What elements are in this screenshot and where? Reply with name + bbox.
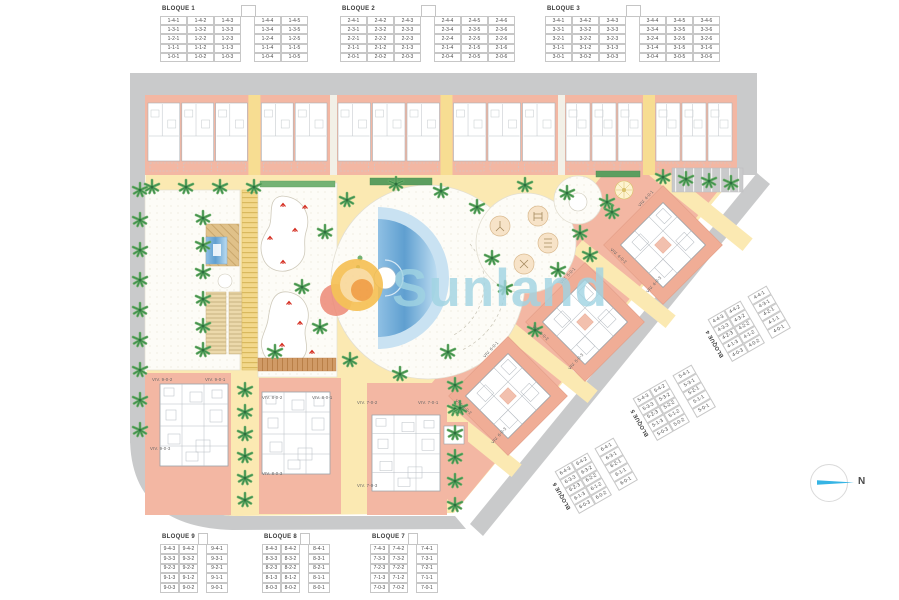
hedge-2 — [596, 171, 640, 177]
unit-cell: 1-4-4 — [254, 16, 281, 25]
unit-cell: 7-0-1 — [416, 583, 438, 593]
unit-row: 7-3-37-3-27-3-1 — [370, 554, 438, 564]
unit-row: 8-1-38-1-28-1-1 — [262, 573, 330, 583]
gap-cell — [300, 583, 308, 593]
unit-cell: 7-1-2 — [389, 573, 408, 583]
unit-cell: 8-0-3 — [262, 583, 281, 593]
gap-cell — [408, 564, 416, 574]
unit-cell: 3-3-2 — [572, 25, 599, 34]
unit-cell: 3-0-1 — [545, 53, 572, 62]
unit-cell: 8-4-3 — [262, 544, 281, 554]
unit-cell: 2-0-3 — [394, 53, 421, 62]
top-right-road-corner — [737, 95, 757, 175]
bloque-9-grid: 9-4-39-4-29-4-19-3-39-3-29-3-19-2-39-2-2… — [160, 544, 228, 593]
viv-label: VIV. 8-0-2 — [262, 395, 283, 400]
bloque-3-table: BLOQUE 3 3-4-13-4-23-4-33-4-43-4-53-4-63… — [545, 5, 720, 62]
unit-row: 1-4-11-4-21-4-31-4-41-4-5 — [160, 16, 308, 25]
header-box — [408, 533, 418, 545]
unit-cell: 3-0-4 — [639, 53, 666, 62]
unit-cell: 1-2-4 — [254, 34, 281, 43]
unit-cell: 8-1-3 — [262, 573, 281, 583]
unit-cell: 2-3-5 — [461, 25, 488, 34]
gap-cell — [241, 53, 254, 62]
unit-cell: 9-3-1 — [206, 554, 228, 564]
unit-cell: 9-4-3 — [160, 544, 179, 554]
unit-row: 1-2-11-2-21-2-31-2-41-2-5 — [160, 34, 308, 43]
viv-label: VIV. 8-0-3 — [262, 471, 283, 476]
unit-cell: 9-0-1 — [206, 583, 228, 593]
unit-cell: 2-0-4 — [434, 53, 461, 62]
unit-cell: 2-2-4 — [434, 34, 461, 43]
gap-cell — [198, 573, 206, 583]
unit-cell: 7-2-1 — [416, 564, 438, 574]
unit-row: 1-3-11-3-21-3-31-3-41-3-5 — [160, 25, 308, 34]
bottom-building-zones — [145, 373, 468, 515]
unit-cell: 1-1-4 — [254, 44, 281, 53]
unit-cell: 2-4-4 — [434, 16, 461, 25]
unit-cell: 3-4-5 — [666, 16, 693, 25]
unit-cell: 1-3-1 — [160, 25, 187, 34]
unit-cell: 8-3-3 — [262, 554, 281, 564]
block-9-building — [160, 384, 228, 466]
unit-cell: 7-2-2 — [389, 564, 408, 574]
unit-cell: 9-1-2 — [179, 573, 198, 583]
unit-cell: 2-4-3 — [394, 16, 421, 25]
unit-cell: 9-2-2 — [179, 564, 198, 574]
header-box — [421, 5, 436, 17]
bloque-2-grid: 2-4-12-4-22-4-32-4-42-4-52-4-62-3-12-3-2… — [340, 16, 515, 62]
unit-cell: 3-1-2 — [572, 44, 599, 53]
unit-row: 3-4-13-4-23-4-33-4-43-4-53-4-6 — [545, 16, 720, 25]
unit-cell: 7-4-3 — [370, 544, 389, 554]
bloque-9-title: BLOQUE 9 — [162, 534, 195, 540]
unit-cell: 3-2-5 — [666, 34, 693, 43]
unit-cell: 9-2-1 — [206, 564, 228, 574]
bloque-3-grid: 3-4-13-4-23-4-33-4-43-4-53-4-63-3-13-3-2… — [545, 16, 720, 62]
bloque-3-header: BLOQUE 3 — [545, 5, 720, 16]
site-plan-page: VIV. 4-0-1 VIV. 4-0-2 VIV. 4-0-3 VIV. 5-… — [0, 0, 899, 600]
unit-cell: 9-0-3 — [160, 583, 179, 593]
hedge-garden — [260, 181, 335, 187]
unit-cell: 1-4-1 — [160, 16, 187, 25]
unit-cell: 8-4-1 — [308, 544, 330, 554]
unit-row: 8-0-38-0-28-0-1 — [262, 583, 330, 593]
unit-cell: 7-0-2 — [389, 583, 408, 593]
top-road — [130, 73, 757, 95]
pool-steps — [374, 267, 396, 289]
gap-cell — [241, 16, 254, 25]
unit-cell: 3-3-5 — [666, 25, 693, 34]
unit-cell: 8-1-1 — [308, 573, 330, 583]
bloque-7-title: BLOQUE 7 — [372, 534, 405, 540]
unit-cell: 1-1-3 — [214, 44, 241, 53]
unit-cell: 7-3-1 — [416, 554, 438, 564]
unit-cell: 3-3-4 — [639, 25, 666, 34]
unit-cell: 1-3-4 — [254, 25, 281, 34]
amenity-circle — [218, 274, 232, 288]
unit-cell: 2-3-3 — [394, 25, 421, 34]
unit-cell: 3-2-2 — [572, 34, 599, 43]
viv-label: VIV. 9-0-2 — [152, 377, 173, 382]
unit-cell: 8-2-2 — [281, 564, 300, 574]
unit-cell: 2-1-4 — [434, 44, 461, 53]
gap-cell — [241, 44, 254, 53]
unit-cell: 2-1-6 — [488, 44, 515, 53]
bloque-1-header: BLOQUE 1 — [160, 5, 308, 16]
viv-label: VIV. 7-0-3 — [357, 483, 378, 488]
unit-cell: 7-4-2 — [389, 544, 408, 554]
unit-cell: 1-4-2 — [187, 16, 214, 25]
gap-cell — [408, 544, 416, 554]
unit-cell: 9-3-2 — [179, 554, 198, 564]
gap-cell — [626, 34, 639, 43]
unit-cell: 1-2-5 — [281, 34, 308, 43]
unit-cell: 7-3-3 — [370, 554, 389, 564]
unit-cell: 9-4-1 — [206, 544, 228, 554]
bloque-1-table: BLOQUE 1 1-4-11-4-21-4-31-4-41-4-51-3-11… — [160, 5, 308, 62]
gap-cell — [626, 25, 639, 34]
kidney-pond-garden — [258, 181, 337, 377]
unit-cell: 3-3-6 — [693, 25, 720, 34]
unit-cell: 3-0-3 — [599, 53, 626, 62]
unit-row: 7-4-37-4-27-4-1 — [370, 544, 438, 554]
unit-cell: 3-0-5 — [666, 53, 693, 62]
unit-row: 7-0-37-0-27-0-1 — [370, 583, 438, 593]
bloque-2-title: BLOQUE 2 — [342, 6, 375, 12]
unit-cell: 2-0-5 — [461, 53, 488, 62]
gap-cell — [241, 25, 254, 34]
unit-cell: 1-0-4 — [254, 53, 281, 62]
unit-cell: 3-2-6 — [693, 34, 720, 43]
bloque-1-grid: 1-4-11-4-21-4-31-4-41-4-51-3-11-3-21-3-3… — [160, 16, 308, 62]
unit-row: 8-2-38-2-28-2-1 — [262, 564, 330, 574]
gap-cell — [421, 16, 434, 25]
unit-cell: 3-0-2 — [572, 53, 599, 62]
gap-cell — [626, 16, 639, 25]
gap-cell — [300, 573, 308, 583]
unit-row: 3-0-13-0-23-0-33-0-43-0-53-0-6 — [545, 53, 720, 62]
unit-cell: 3-3-3 — [599, 25, 626, 34]
unit-cell: 1-0-3 — [214, 53, 241, 62]
unit-row: 8-4-38-4-28-4-1 — [262, 544, 330, 554]
gap-cell — [421, 44, 434, 53]
unit-cell: 9-0-2 — [179, 583, 198, 593]
header-box — [198, 533, 208, 545]
unit-cell: 8-2-3 — [262, 564, 281, 574]
unit-cell: 7-2-3 — [370, 564, 389, 574]
block-8-building — [262, 392, 330, 474]
bloque-8-header: BLOQUE 8 — [262, 533, 330, 544]
unit-cell: 1-3-3 — [214, 25, 241, 34]
unit-cell: 2-1-1 — [340, 44, 367, 53]
unit-cell: 7-3-2 — [389, 554, 408, 564]
amenity-area — [145, 190, 242, 370]
unit-cell: 1-3-5 — [281, 25, 308, 34]
header-box — [300, 533, 310, 545]
unit-row: 1-1-11-1-21-1-31-1-41-1-5 — [160, 44, 308, 53]
unit-cell: 1-0-2 — [187, 53, 214, 62]
unit-cell: 2-3-6 — [488, 25, 515, 34]
unit-cell: 8-0-1 — [308, 583, 330, 593]
block-7-building — [372, 415, 440, 491]
unit-cell: 3-1-3 — [599, 44, 626, 53]
flower-feature — [615, 181, 633, 199]
bloque-7-grid: 7-4-37-4-27-4-17-3-37-3-27-3-17-2-37-2-2… — [370, 544, 438, 593]
unit-cell: 9-4-2 — [179, 544, 198, 554]
unit-cell: 2-1-2 — [367, 44, 394, 53]
unit-cell: 8-1-2 — [281, 573, 300, 583]
left-road — [130, 73, 145, 443]
unit-cell: 1-2-1 — [160, 34, 187, 43]
viv-label: VIV. 9-0-1 — [205, 377, 226, 382]
viv-label: VIV. 8-0-1 — [312, 395, 333, 400]
unit-cell: 3-1-6 — [693, 44, 720, 53]
pergola-walkway — [242, 190, 258, 370]
unit-cell: 2-4-1 — [340, 16, 367, 25]
unit-cell: 3-4-1 — [545, 16, 572, 25]
gap-cell — [198, 544, 206, 554]
viv-label: VIV. 7-0-2 — [357, 400, 378, 405]
gap-cell — [421, 34, 434, 43]
unit-cell: 2-1-3 — [394, 44, 421, 53]
unit-cell: 1-1-5 — [281, 44, 308, 53]
bloque-9-table: BLOQUE 9 9-4-39-4-29-4-19-3-39-3-29-3-19… — [160, 533, 228, 593]
unit-cell: 7-4-1 — [416, 544, 438, 554]
north-label: N — [858, 476, 865, 487]
unit-cell: 2-0-1 — [340, 53, 367, 62]
unit-cell: 3-3-1 — [545, 25, 572, 34]
unit-cell: 3-0-6 — [693, 53, 720, 62]
unit-row: 2-4-12-4-22-4-32-4-42-4-52-4-6 — [340, 16, 515, 25]
band-gap-1 — [330, 95, 337, 175]
gap-cell — [300, 544, 308, 554]
unit-row: 2-2-12-2-22-2-32-2-42-2-52-2-6 — [340, 34, 515, 43]
unit-cell: 2-1-5 — [461, 44, 488, 53]
unit-row: 8-3-38-3-28-3-1 — [262, 554, 330, 564]
unit-cell: 8-3-2 — [281, 554, 300, 564]
bloque-8-grid: 8-4-38-4-28-4-18-3-38-3-28-3-18-2-38-2-2… — [262, 544, 330, 593]
unit-cell: 9-1-3 — [160, 573, 179, 583]
bloque-9-header: BLOQUE 9 — [160, 533, 228, 544]
gap-cell — [626, 53, 639, 62]
gap-cell — [300, 554, 308, 564]
bloque-7-table: BLOQUE 7 7-4-37-4-27-4-17-3-37-3-27-3-17… — [370, 533, 438, 593]
unit-row: 3-1-13-1-23-1-33-1-43-1-53-1-6 — [545, 44, 720, 53]
sunbed-row-2 — [229, 292, 242, 354]
unit-cell: 8-2-1 — [308, 564, 330, 574]
unit-cell: 3-4-4 — [639, 16, 666, 25]
gap-cell — [300, 564, 308, 574]
unit-cell: 3-4-3 — [599, 16, 626, 25]
unit-cell: 9-2-3 — [160, 564, 179, 574]
bloque-2-table: BLOQUE 2 2-4-12-4-22-4-32-4-42-4-52-4-62… — [340, 5, 515, 62]
unit-row: 2-1-12-1-22-1-32-1-42-1-52-1-6 — [340, 44, 515, 53]
unit-cell: 1-2-2 — [187, 34, 214, 43]
unit-row: 2-3-12-3-22-3-32-3-42-3-52-3-6 — [340, 25, 515, 34]
unit-cell: 2-3-2 — [367, 25, 394, 34]
unit-cell: 1-1-1 — [160, 44, 187, 53]
unit-cell: 9-1-1 — [206, 573, 228, 583]
unit-cell: 2-4-2 — [367, 16, 394, 25]
bloque-2-header: BLOQUE 2 — [340, 5, 515, 16]
bottom-deck — [258, 358, 336, 371]
unit-row: 9-2-39-2-29-2-1 — [160, 564, 228, 574]
unit-row: 1-0-11-0-21-0-31-0-41-0-5 — [160, 53, 308, 62]
unit-row: 7-2-37-2-27-2-1 — [370, 564, 438, 574]
unit-cell: 2-0-2 — [367, 53, 394, 62]
bloque-8-table: BLOQUE 8 8-4-38-4-28-4-18-3-38-3-28-3-18… — [262, 533, 330, 593]
unit-row: 9-3-39-3-29-3-1 — [160, 554, 228, 564]
header-box — [626, 5, 641, 17]
gap-cell — [421, 25, 434, 34]
unit-cell: 3-1-5 — [666, 44, 693, 53]
unit-cell: 3-4-2 — [572, 16, 599, 25]
unit-cell: 3-2-4 — [639, 34, 666, 43]
unit-cell: 7-1-3 — [370, 573, 389, 583]
unit-cell: 2-2-2 — [367, 34, 394, 43]
gap-cell — [408, 554, 416, 564]
gap-cell — [408, 583, 416, 593]
viv-label: VIV. 7-0-1 — [418, 400, 439, 405]
unit-row: 3-2-13-2-23-2-33-2-43-2-53-2-6 — [545, 34, 720, 43]
unit-cell: 1-4-5 — [281, 16, 308, 25]
unit-cell: 1-1-2 — [187, 44, 214, 53]
unit-cell: 7-1-1 — [416, 573, 438, 583]
unit-cell: 2-4-5 — [461, 16, 488, 25]
gap-cell — [198, 583, 206, 593]
unit-cell: 1-0-5 — [281, 53, 308, 62]
unit-cell: 2-0-6 — [488, 53, 515, 62]
unit-cell: 2-2-1 — [340, 34, 367, 43]
unit-cell: 7-0-3 — [370, 583, 389, 593]
unit-cell: 2-4-6 — [488, 16, 515, 25]
bloque-1-title: BLOQUE 1 — [162, 6, 195, 12]
unit-cell: 2-3-4 — [434, 25, 461, 34]
unit-cell: 3-4-6 — [693, 16, 720, 25]
gap-cell — [626, 44, 639, 53]
unit-cell: 3-2-1 — [545, 34, 572, 43]
unit-cell: 1-3-2 — [187, 25, 214, 34]
unit-row: 9-4-39-4-29-4-1 — [160, 544, 228, 554]
unit-cell: 2-2-3 — [394, 34, 421, 43]
unit-row: 3-3-13-3-23-3-33-3-43-3-53-3-6 — [545, 25, 720, 34]
unit-cell: 1-4-3 — [214, 16, 241, 25]
unit-cell: 3-2-3 — [599, 34, 626, 43]
band-gap-2 — [558, 95, 565, 175]
unit-cell: 2-2-5 — [461, 34, 488, 43]
gap-cell — [241, 34, 254, 43]
unit-cell: 9-3-3 — [160, 554, 179, 564]
north-compass: N — [810, 464, 880, 504]
unit-row: 9-0-39-0-29-0-1 — [160, 583, 228, 593]
unit-cell: 1-2-3 — [214, 34, 241, 43]
unit-cell: 3-1-4 — [639, 44, 666, 53]
unit-cell: 8-4-2 — [281, 544, 300, 554]
unit-row: 7-1-37-1-27-1-1 — [370, 573, 438, 583]
unit-cell: 8-3-1 — [308, 554, 330, 564]
viv-label: VIV. 9-0-3 — [150, 446, 171, 451]
unit-cell: 2-3-1 — [340, 25, 367, 34]
unit-row: 2-0-12-0-22-0-32-0-42-0-52-0-6 — [340, 53, 515, 62]
gap-cell — [198, 564, 206, 574]
bloque-7-header: BLOQUE 7 — [370, 533, 438, 544]
unit-row: 9-1-39-1-29-1-1 — [160, 573, 228, 583]
bloque-8-title: BLOQUE 8 — [264, 534, 297, 540]
header-box — [241, 5, 256, 17]
gap-cell — [198, 554, 206, 564]
unit-cell: 2-2-6 — [488, 34, 515, 43]
gap-cell — [408, 573, 416, 583]
gap-cell — [421, 53, 434, 62]
unit-cell: 1-0-1 — [160, 53, 187, 62]
unit-cell: 8-0-2 — [281, 583, 300, 593]
unit-cell: 3-1-1 — [545, 44, 572, 53]
bloque-3-title: BLOQUE 3 — [547, 6, 580, 12]
